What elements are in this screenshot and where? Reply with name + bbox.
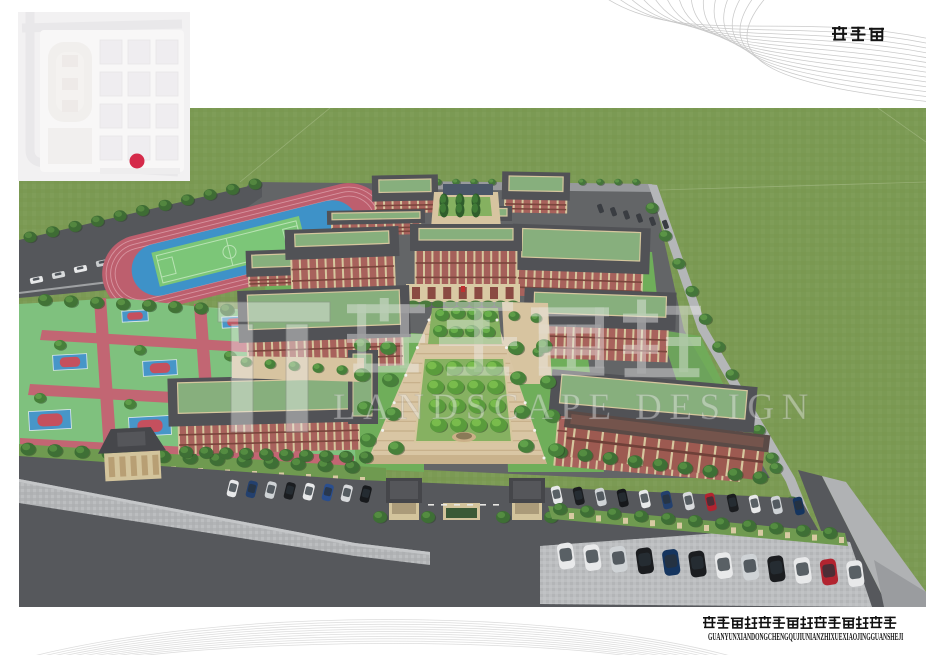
svg-text:GUANYUNXIANDONGCHENGQUJIUNIANZ: GUANYUNXIANDONGCHENGQUJIUNIANZHIXUEXIAOJ… bbox=[708, 630, 903, 642]
svg-text:LANDSCAPE DESIGN: LANDSCAPE DESIGN bbox=[333, 387, 816, 428]
